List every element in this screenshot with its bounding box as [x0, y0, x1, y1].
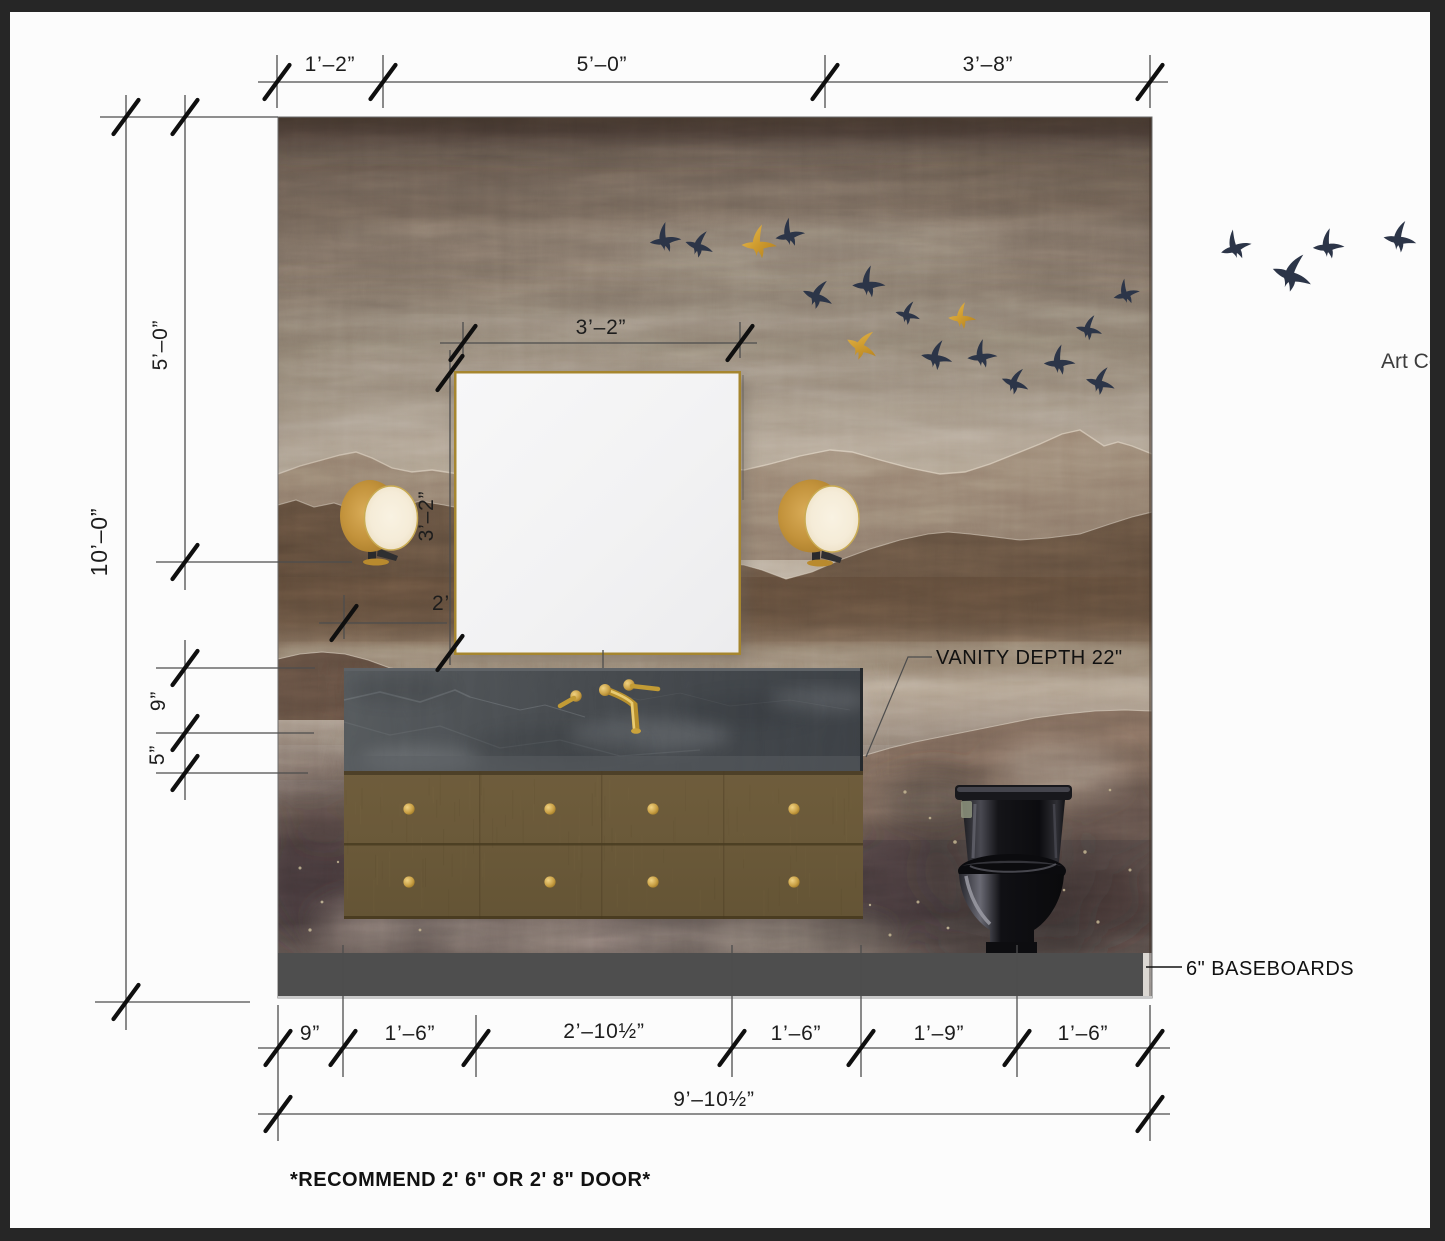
svg-text:9”: 9” [300, 1022, 320, 1045]
svg-text:VANITY DEPTH 22": VANITY DEPTH 22" [936, 647, 1123, 669]
svg-text:1’–6”: 1’–6” [385, 1022, 436, 1045]
svg-text:6" BASEBOARDS: 6" BASEBOARDS [1186, 958, 1354, 980]
svg-text:9”: 9” [147, 691, 170, 711]
svg-text:1’–9”: 1’–9” [914, 1022, 965, 1045]
svg-text:1’–2”: 1’–2” [305, 53, 356, 76]
svg-text:3’–2”: 3’–2” [576, 316, 627, 339]
svg-text:2’: 2’ [432, 592, 450, 615]
svg-text:10’–0”: 10’–0” [86, 508, 112, 577]
svg-text:9’–10½”: 9’–10½” [673, 1088, 755, 1111]
svg-text:3’–8”: 3’–8” [963, 53, 1014, 76]
svg-text:5”: 5” [146, 745, 169, 765]
svg-text:5’–0”: 5’–0” [149, 320, 172, 371]
svg-text:*RECOMMEND 2' 6" OR 2' 8" DOOR: *RECOMMEND 2' 6" OR 2' 8" DOOR* [290, 1169, 651, 1191]
svg-text:1’–6”: 1’–6” [1058, 1022, 1109, 1045]
svg-text:3’–2”: 3’–2” [415, 491, 438, 542]
svg-text:1’–6”: 1’–6” [771, 1022, 822, 1045]
svg-text:2’–10½”: 2’–10½” [563, 1020, 645, 1043]
svg-text:5’–0”: 5’–0” [577, 53, 628, 76]
